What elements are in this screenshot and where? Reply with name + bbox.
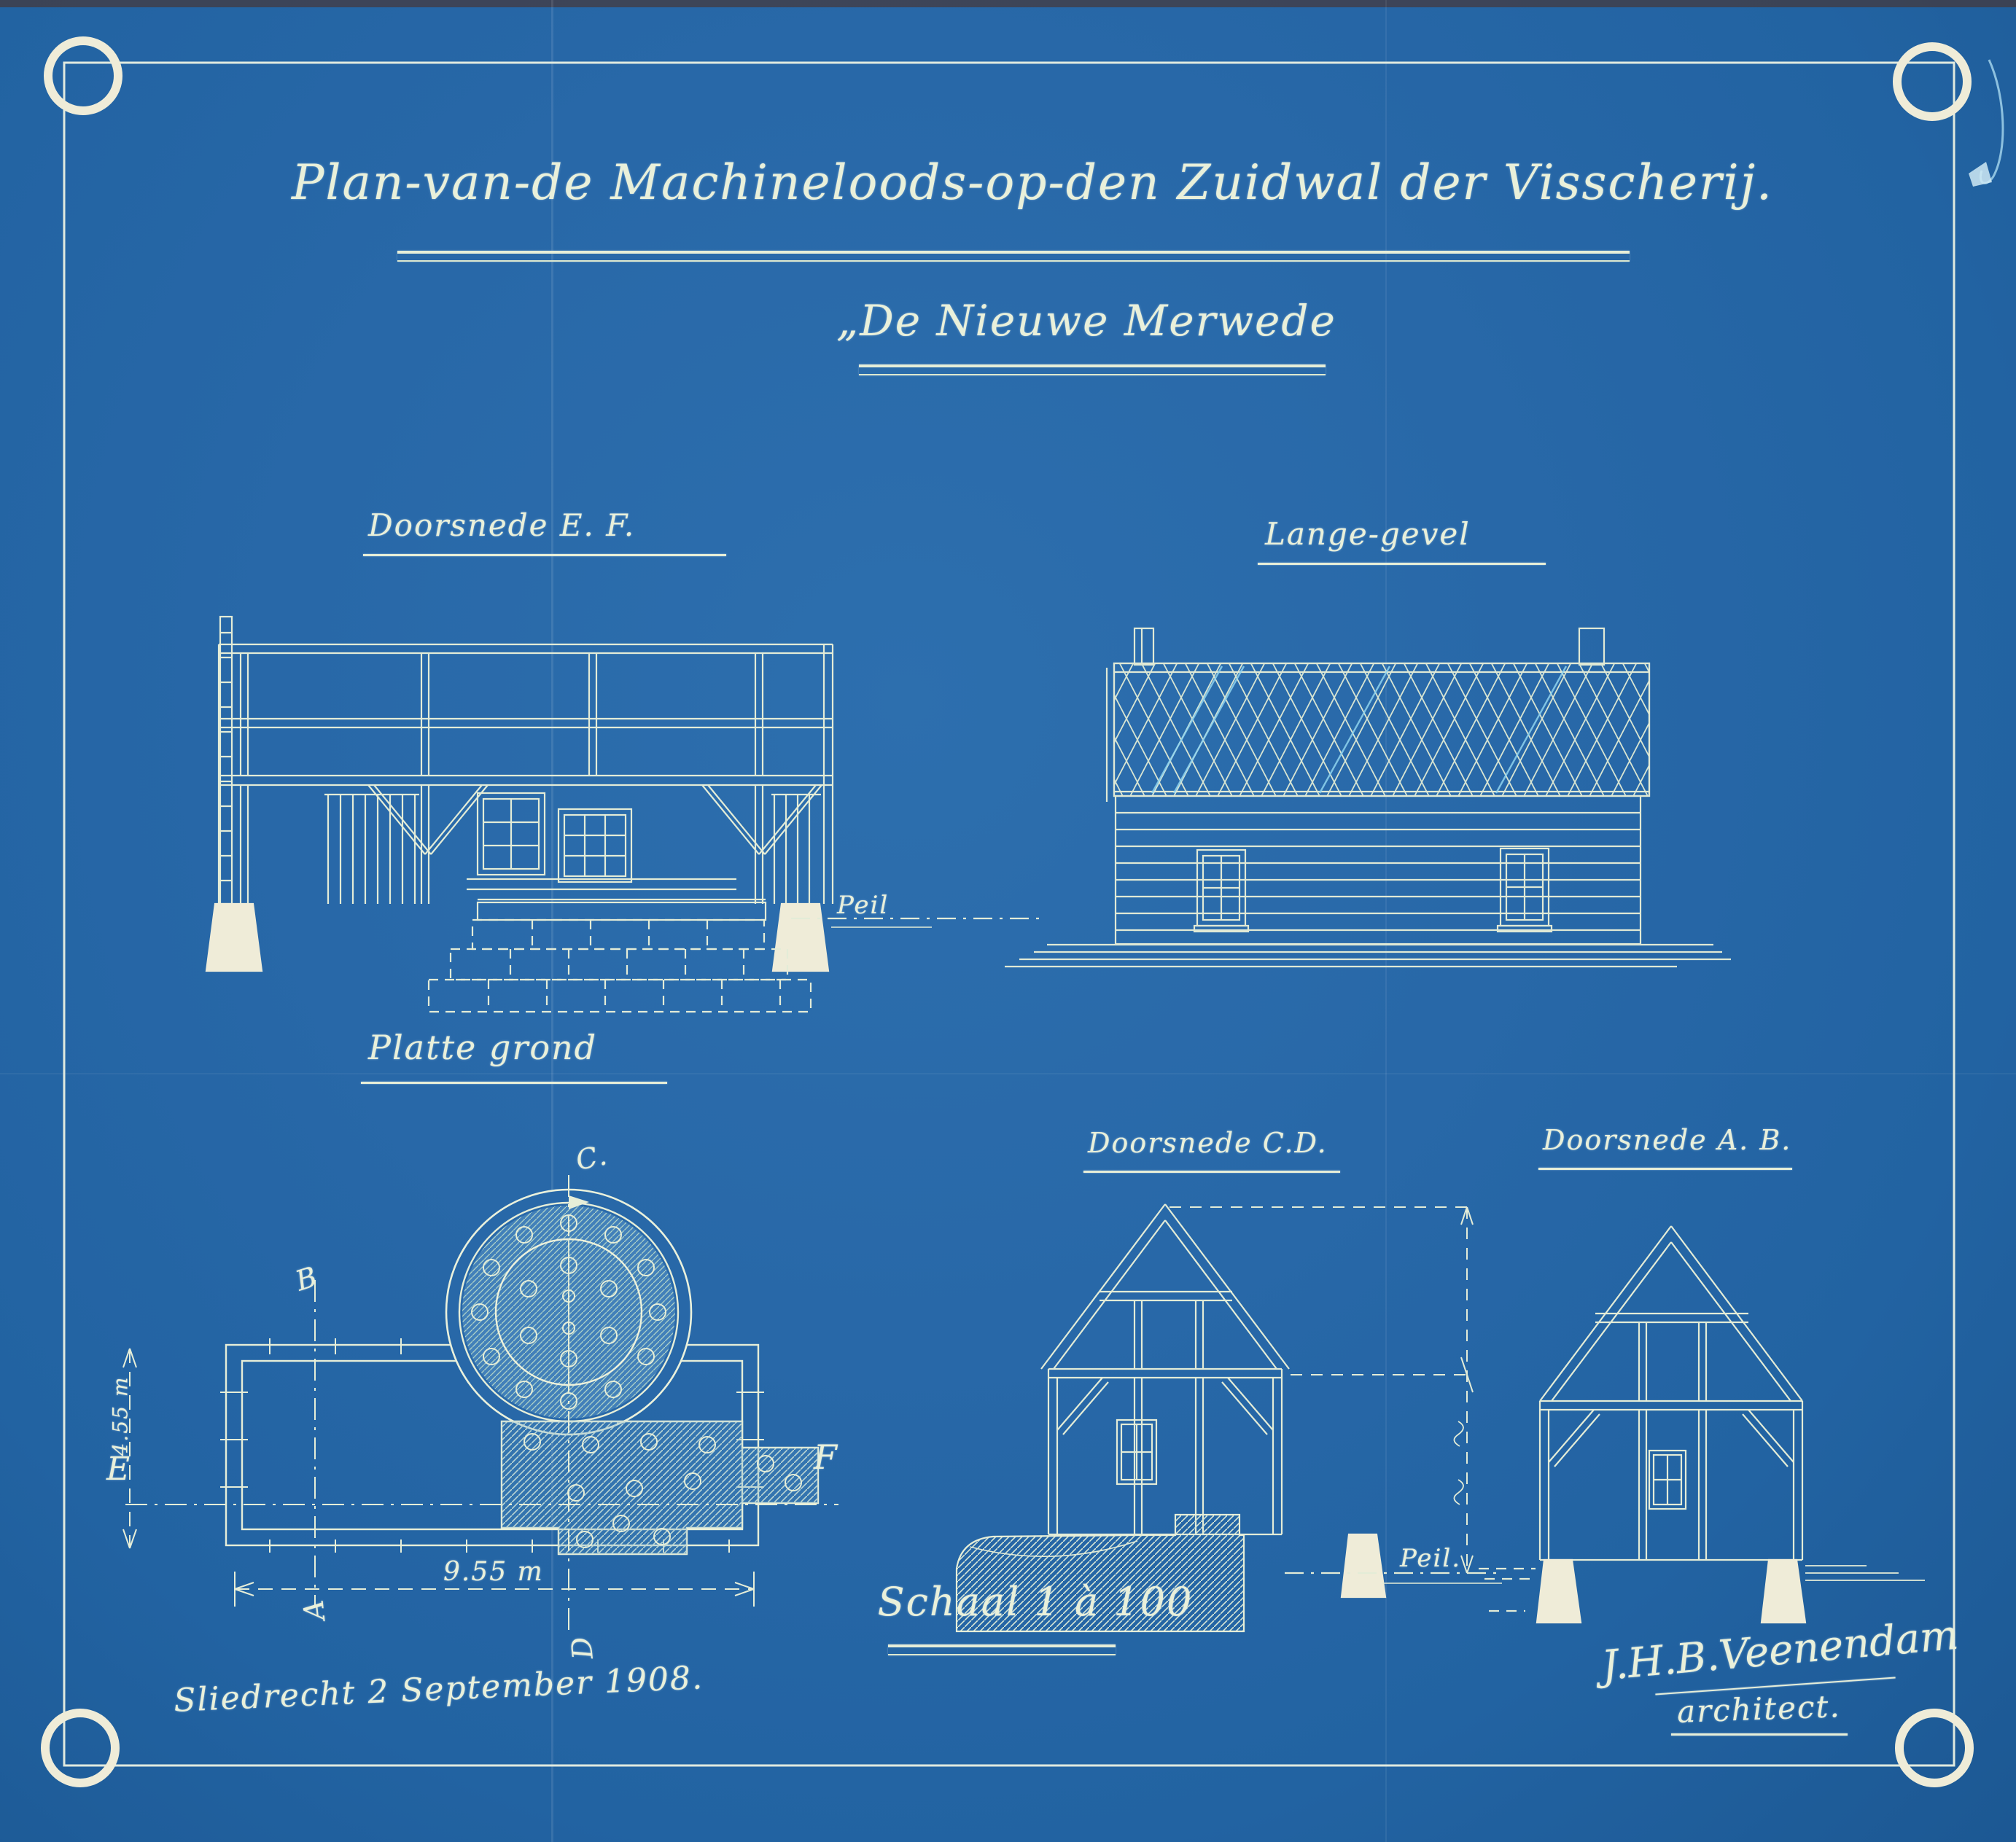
punch-ring-icon [1899,1713,1969,1783]
sheet-title: Plan-van-de Machineloods-op-den Zuidwal … [292,155,1735,211]
peil-label-ef: Peil [837,891,889,920]
window-icon [1194,850,1248,932]
chimney-icon [1579,628,1604,665]
label-underline [1258,563,1546,565]
footing-pier [206,904,262,971]
architect-title: architect. [1676,1688,1841,1730]
label-lange-gevel: Lange-gevel [1265,516,1471,552]
blueprint-linework [0,0,2016,1842]
marker-f: F [814,1437,838,1477]
label-underline [1538,1168,1792,1170]
footing-pier [1762,1560,1805,1623]
punch-ring-icon [45,1713,115,1783]
window-icon [559,809,631,882]
plan-depth-dimension: 4.55 m [108,1376,132,1456]
footing-pier [1342,1534,1385,1597]
window-icon [1649,1451,1686,1509]
blueprint-sheet: Plan-van-de Machineloods-op-den Zuidwal … [0,0,2016,1842]
label-underline [1083,1171,1340,1173]
drawing-doorsnede-ef [206,617,1043,1012]
pen-mark [1969,162,1992,187]
drawing-lange-gevel [1005,628,1731,967]
label-platte-grond: Platte grond [368,1028,597,1067]
peil-label-cd: Peil. [1400,1544,1461,1573]
window-icon [1117,1420,1156,1484]
window-icon [1498,848,1552,932]
marker-e: E [106,1451,131,1488]
subtitle-underline [859,364,1326,375]
drawing-doorsnede-ab [1479,1226,1925,1623]
scale-underline [888,1644,1116,1655]
marker-d: D [565,1634,599,1661]
engine-bed [502,1421,818,1554]
label-doorsnede-ef: Doorsnede E. F. [368,507,635,543]
marker-a: A [297,1597,331,1622]
title-underline [397,251,1630,262]
label-underline [361,1082,667,1084]
footing-pier [1537,1560,1581,1623]
window-icon [478,793,545,875]
scale-label: Schaal 1 à 100 [860,1579,1210,1625]
punch-ring-icon [1897,47,1967,117]
footing-pier [773,904,828,971]
label-doorsnede-cd: Doorsnede C.D. [1088,1127,1328,1159]
plan-width-dimension: 9.55 m [443,1557,544,1587]
roof-tiles [1114,663,1649,796]
label-underline [363,554,726,556]
marker-c: C. [573,1139,611,1176]
label-doorsnede-ab: Doorsnede A. B. [1543,1124,1791,1156]
sheet-subtitle: „De Nieuwe Merwede [758,296,1414,346]
dim-script-mark [1454,1421,1463,1505]
punch-ring-icon [48,41,118,111]
chimney-icon [1135,628,1153,665]
architect-title-underline [1671,1733,1848,1736]
